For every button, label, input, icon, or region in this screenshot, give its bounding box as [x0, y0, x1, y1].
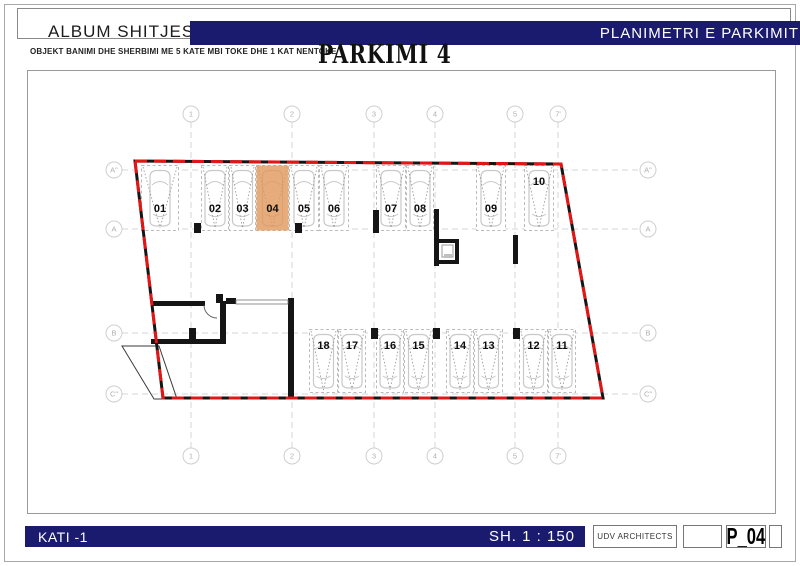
svg-text:2: 2 [290, 110, 294, 119]
stall-number: 05 [298, 203, 310, 215]
grid-bubble-7: 7' [550, 448, 566, 464]
parking-stall-03: 03 [230, 166, 256, 231]
stall-number: 17 [346, 340, 358, 352]
stall-number: 15 [412, 340, 424, 352]
partition-wall [236, 300, 288, 304]
parking-stall-17: 17 [339, 330, 366, 393]
svg-text:A": A" [110, 166, 118, 175]
parking-stall-09: 09 [477, 166, 506, 231]
parking-stall-01: 01 [142, 166, 179, 231]
grid-bubble-4: 4 [427, 106, 443, 122]
grid-bubble-B: B [106, 325, 122, 341]
parking-stall-04: 04 [257, 166, 289, 231]
grid-bubble-A: A" [106, 162, 122, 178]
parking-stall-15: 15 [405, 330, 433, 393]
stalls-layer: 010203040506070809101817161514131211 [142, 166, 576, 393]
header: ALBUM SHITJESH PLANIMETRI E PARKIMIT [17, 8, 791, 39]
ramp-outline [122, 346, 177, 399]
svg-text:3: 3 [372, 452, 376, 461]
grid-bubble-2: 2 [284, 448, 300, 464]
album-title: ALBUM SHITJESH [48, 22, 207, 42]
parking-stall-06: 06 [320, 166, 349, 231]
grid-bubble-1: 1 [183, 106, 199, 122]
grid-bubble-1: 1 [183, 448, 199, 464]
svg-text:7': 7' [555, 452, 561, 461]
header-title-bar: PLANIMETRI E PARKIMIT [190, 21, 800, 45]
stall-number: 03 [236, 203, 248, 215]
car-icon [381, 171, 401, 227]
plan-title: PARKIMI 4 [318, 40, 452, 70]
svg-text:5: 5 [513, 110, 517, 119]
parking-stall-16: 16 [377, 330, 404, 393]
car-icon [324, 171, 344, 227]
svg-text:4: 4 [433, 110, 437, 119]
stall-number: 13 [482, 340, 494, 352]
architect-box: UDV ARCHITECTS [593, 525, 677, 548]
parking-stall-10: 10 [525, 166, 554, 231]
footer-title-bar: KATI -1 SH. 1 : 150 [25, 526, 585, 547]
parking-stall-05: 05 [290, 166, 319, 231]
svg-text:A": A" [644, 166, 652, 175]
svg-text:1: 1 [189, 452, 193, 461]
parking-stall-08: 08 [407, 166, 434, 231]
parking-stall-07: 07 [377, 166, 406, 231]
stall-number: 12 [527, 340, 539, 352]
parking-stall-11: 11 [549, 330, 576, 393]
stall-number: 18 [317, 340, 329, 352]
stall-number: 06 [328, 203, 340, 215]
svg-text:A: A [645, 225, 650, 234]
svg-text:C": C" [644, 390, 652, 399]
grid-bubble-A: A" [640, 162, 656, 178]
sheet-title: PLANIMETRI E PARKIMIT [600, 25, 799, 42]
svg-text:4: 4 [433, 452, 437, 461]
stall-number: 14 [454, 340, 467, 352]
grid-bubble-B: B [640, 325, 656, 341]
drawing-sheet: ALBUM SHITJESH PLANIMETRI E PARKIMIT OBJ… [0, 0, 800, 566]
sheet-number: P_04 [727, 525, 766, 548]
svg-text:B: B [645, 329, 650, 338]
floor-label: KATI -1 [38, 529, 88, 545]
empty-revision-box [769, 525, 782, 548]
stall-number: 01 [154, 203, 166, 215]
grid-bubble-3: 3 [366, 106, 382, 122]
project-description: OBJEKT BANIMI DHE SHERBIMI ME 5 KATE MBI… [30, 47, 337, 56]
stall-number: 02 [209, 203, 221, 215]
grid-bubble-7: 7' [550, 106, 566, 122]
car-icon [205, 171, 225, 227]
grid-bubble-C: C" [106, 386, 122, 402]
parking-stall-18: 18 [310, 330, 338, 393]
stall-number: 08 [414, 203, 426, 215]
parking-stall-12: 12 [520, 330, 548, 393]
door-swing-arc [204, 305, 217, 318]
parking-stall-13: 13 [475, 330, 503, 393]
svg-text:3: 3 [372, 110, 376, 119]
stall-number: 16 [384, 340, 396, 352]
grid-bubble-C: C" [640, 386, 656, 402]
highlighted-stall-overlay [257, 166, 289, 231]
parking-stall-02: 02 [202, 166, 229, 231]
car-icon [233, 171, 253, 227]
car-icon [410, 171, 430, 227]
grid-bubble-3: 3 [366, 448, 382, 464]
sheet-number-box: P_04 [726, 525, 766, 548]
parking-stall-14: 14 [447, 330, 474, 393]
plan-frame: 0102030405060708091018171615141312111122… [27, 70, 776, 514]
car-icon [150, 171, 170, 227]
grid-bubble-5: 5 [507, 106, 523, 122]
stall-number: 10 [533, 176, 545, 188]
car-icon [294, 171, 314, 227]
stall-number: 11 [556, 340, 568, 352]
svg-text:A: A [111, 225, 116, 234]
car-icon [481, 171, 501, 227]
grid-bubble-A: A [640, 221, 656, 237]
svg-text:C": C" [110, 390, 118, 399]
svg-text:5: 5 [513, 452, 517, 461]
grid-bubble-5: 5 [507, 448, 523, 464]
floor-plan: 0102030405060708091018171615141312111122… [28, 71, 775, 513]
svg-text:7': 7' [555, 110, 561, 119]
grid-bubble-2: 2 [284, 106, 300, 122]
grid-bubbles-layer: 11223344557'7'A"A"AABBC"C" [106, 106, 656, 464]
grid-bubble-4: 4 [427, 448, 443, 464]
empty-title-box [683, 525, 722, 548]
scale-label: SH. 1 : 150 [489, 528, 575, 545]
svg-text:2: 2 [290, 452, 294, 461]
svg-text:1: 1 [189, 110, 193, 119]
stall-number: 04 [266, 203, 279, 215]
stall-number: 09 [485, 203, 497, 215]
grid-bubble-A: A [106, 221, 122, 237]
stall-number: 07 [385, 203, 397, 215]
svg-text:B: B [111, 329, 116, 338]
